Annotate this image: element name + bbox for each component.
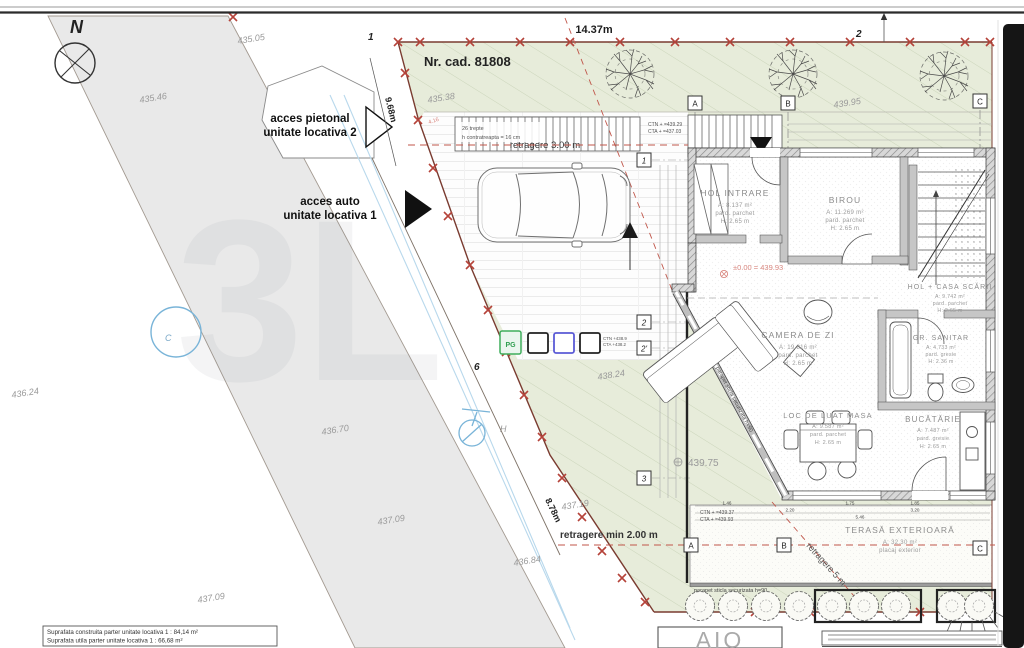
meter-box-3 (580, 333, 600, 353)
dim-175: 1.75 (846, 501, 855, 506)
car-top-view (478, 163, 630, 247)
room-area: A: 9.742 m² (935, 294, 965, 300)
room-height: H: 2.36 m (928, 359, 953, 365)
retragere-2m: retragere min 2.00 m (560, 530, 658, 541)
room-height: H: 2.65 m (815, 440, 842, 446)
title-block: AIO (658, 627, 1002, 648)
room-name: HOL + CASA SCĂRII (908, 282, 993, 291)
point-2-label: 2 (855, 29, 862, 40)
dim-185: 1.85 (911, 501, 920, 506)
grid-col-C: C (977, 98, 983, 107)
room-name: BUCĂTĂRIE (905, 415, 961, 424)
bushes-row (686, 590, 996, 622)
room-name: HOL INTRARE (701, 188, 770, 198)
room-floor: pard. parchet (778, 353, 817, 359)
grid-col-C-bottom: C (977, 545, 983, 554)
room-floor: pard. gresie (917, 436, 950, 442)
north-label: N (70, 17, 84, 37)
room-height: H: 2.65 m (831, 226, 860, 232)
disclaimer-text-line (828, 634, 996, 636)
point-2-leader (881, 13, 887, 42)
ctn-north-1: CTN + =439.29 (648, 122, 682, 128)
window-east-sanitar (986, 330, 995, 372)
room-area: A: 7.487 m² (917, 428, 949, 434)
site-plan-page: 3L C H (0, 0, 1024, 648)
room-floor: pard. parchet (825, 218, 864, 224)
logo-aio: AIO (696, 627, 745, 648)
ctn-south-2: CTA + =439.93 (700, 517, 733, 523)
room-name: BIROU (829, 195, 861, 205)
ctn-mid-2: CTA +438.2 (603, 342, 627, 347)
elev-43975: 439.75 (688, 458, 719, 469)
chamber-label: C (165, 333, 172, 343)
disclaimer-text-line (828, 639, 996, 641)
grid-col-B: B (785, 100, 790, 109)
room-birou: BIROU A: 11.269 m² pard. parchet H: 2.65… (825, 195, 864, 232)
room-area: A: 8.137 m² (718, 203, 752, 209)
site-plan-drawing: 3L C H (0, 0, 1024, 648)
door-gap-entrance (750, 148, 780, 157)
acces-auto-1: acces auto (300, 196, 359, 208)
window-south-dining (793, 491, 881, 500)
dim-146: 1.46 (723, 501, 732, 506)
grid-row-3: 3 (642, 475, 647, 484)
summary-line-1: Suprafata construita parter unitate loca… (47, 629, 198, 636)
meter-box-1 (528, 333, 548, 353)
pg-label: PG (505, 342, 516, 349)
stairs-note-1: 26 trepte (462, 126, 484, 132)
window-east-stair (986, 198, 995, 254)
room-name: GR. SANITAR (913, 335, 969, 342)
room-floor: pard. parchet (933, 301, 968, 307)
summary-line-2: Suprafata utila parter unitate locativa … (47, 638, 183, 645)
room-area: A: 11.269 m² (826, 210, 864, 216)
room-name: CAMERA DE ZI (761, 330, 834, 340)
room-area: A: 4.733 m² (926, 345, 956, 351)
point-1-label: 1 (368, 32, 374, 43)
screen-dark-edge (1003, 24, 1024, 648)
grid-col-A-bottom: A (688, 542, 694, 551)
room-floor: pard. parchet (715, 211, 754, 217)
grid-col-B-bottom: B (781, 542, 786, 551)
dim-968: 9.68m (383, 96, 399, 123)
kitchen-counter (960, 412, 985, 490)
zero-level-text: ±0.00 = 439.93 (733, 263, 783, 272)
grid-row-1: 1 (642, 157, 646, 166)
ctn-north-2: CTA + =437.03 (648, 129, 681, 135)
disclaimer-box (822, 631, 1002, 645)
room-height: H: 2.65 m (920, 444, 947, 450)
retragere-3m: retragere 3.00 m (510, 140, 580, 151)
window-north-birou (800, 148, 872, 157)
dim-14-37: 14.37m (575, 24, 613, 36)
room-floor: placaj exterior (879, 548, 921, 554)
elev-43624: 436.24 (11, 386, 40, 400)
elev-43684: 436.84 (513, 554, 542, 568)
summary-box: Suprafata construita parter unitate loca… (43, 626, 277, 646)
elev-43719: 437.19 (561, 498, 590, 512)
screen-dark-edge-top (1014, 24, 1024, 44)
room-area: A: 9.587 m² (812, 424, 844, 430)
ctn-south-1: CTN + =439.37 (700, 510, 734, 516)
window-east-kitchen (986, 422, 995, 474)
sheet-frame-lines (0, 7, 1024, 13)
room-height: H: 2.65 m (784, 361, 813, 367)
acces-auto-2: unitate locativa 1 (283, 210, 377, 222)
dim-220: 2.20 (786, 508, 795, 513)
room-name: TERASĂ EXTERIOARĂ (845, 525, 955, 535)
elev-43505: 435.05 (237, 32, 267, 46)
room-height: H: 2.65 m (937, 308, 962, 314)
meter-box-2 (554, 333, 574, 353)
room-area: A: 19.816 m² (779, 345, 817, 351)
window-north-stair (918, 148, 974, 157)
room-floor: pard. parchet (810, 432, 846, 438)
room-name: LOC DE LUAT MASA (783, 411, 872, 420)
grid-col-A: A (692, 100, 698, 109)
dim-320: 3.20 (911, 508, 920, 513)
dim-878: 8.78m (543, 496, 563, 523)
dim-546: 5.46 (856, 515, 865, 520)
pedestrian-access-notch (262, 66, 374, 158)
acces-pietonal-1: acces pietonal (270, 113, 349, 125)
point-6-label: 6 (474, 362, 480, 373)
grid-row-2p: 2' (640, 345, 647, 354)
acces-pietonal-2: unitate locativa 2 (263, 127, 356, 139)
window-south-kitchen (950, 491, 986, 500)
door-gap-south (912, 491, 948, 500)
room-floor: pard. gresie (926, 352, 957, 358)
armchair (804, 300, 832, 324)
ctn-mid-1: CTN +438.9 (603, 336, 627, 341)
hydrant-label: H (500, 424, 507, 434)
elev-43709b: 437.09 (197, 591, 226, 605)
cadastral-number: Nr. cad. 81808 (424, 54, 511, 69)
room-height: H: 2.65 m (721, 219, 750, 225)
grid-row-2: 2 (641, 319, 647, 328)
